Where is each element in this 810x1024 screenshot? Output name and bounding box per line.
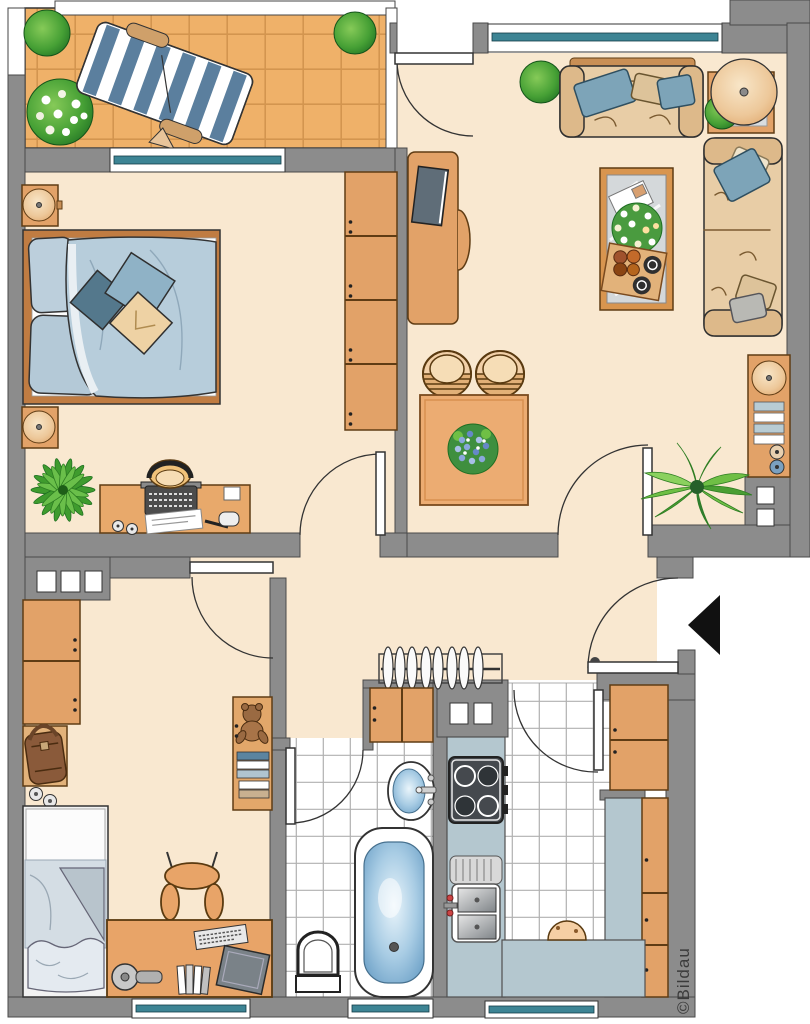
kitchen-cabinet-tall [610, 685, 668, 790]
toilet [296, 932, 340, 992]
floorplan-page: ©Bildau [0, 0, 810, 1024]
kids-wardrobe [23, 600, 80, 724]
sofa-two-seater [560, 58, 703, 137]
kitchen-cabinet-column [642, 798, 668, 997]
coffee-table [600, 168, 673, 310]
burner-icon [455, 796, 475, 816]
faucet-icon [444, 903, 457, 908]
bedroom-desk [100, 482, 250, 535]
bathroom-cabinet [370, 688, 433, 742]
double-bed [23, 230, 220, 404]
hallway [379, 647, 502, 689]
balcony-railing-top [55, 1, 395, 15]
kitchen-counter-bottom [502, 940, 645, 997]
hanger-icon [473, 647, 483, 689]
kids-bed [23, 806, 108, 997]
hanger-icon [421, 647, 431, 689]
serving-tray [601, 243, 666, 300]
living-room-window [488, 24, 722, 52]
balcony [8, 1, 397, 169]
potted-bush-icon [334, 12, 376, 54]
hanger-icon [407, 647, 417, 689]
apartment-floorplan: ©Bildau [0, 0, 810, 1024]
entrance-arrow-icon [688, 595, 720, 655]
toilet-tank [296, 976, 340, 992]
nightstand-top [22, 185, 62, 226]
table-bouquet-icon [448, 424, 498, 474]
drain-icon [390, 943, 399, 952]
hanger-icon [447, 647, 457, 689]
hanger-icon [383, 647, 393, 689]
hallway-lower-floor [284, 680, 367, 738]
bathtub [355, 828, 433, 997]
books [237, 752, 269, 760]
dining-table [420, 395, 528, 505]
nightstand-bottom [22, 407, 58, 448]
kids-desk [107, 920, 272, 997]
stove [449, 757, 508, 823]
round-plant-icon [520, 61, 562, 103]
kitchen-window [485, 1001, 598, 1018]
coat-rack [379, 647, 502, 689]
kids-wall-shelf [233, 697, 272, 810]
stereo-sideboard [748, 355, 790, 477]
mouse-icon [219, 512, 239, 526]
bathroom-window [348, 999, 433, 1018]
sofa-pillow [657, 74, 696, 109]
note-pad [224, 487, 240, 500]
sofa-long [704, 138, 782, 336]
bedroom-wardrobe [345, 172, 397, 430]
watermark-credit: ©Bildau [674, 947, 693, 1014]
hanger-icon [459, 647, 469, 689]
bedroom-window [110, 148, 285, 172]
kids-room-window [132, 999, 250, 1018]
hanger-icon [395, 647, 405, 689]
desk-chair [149, 460, 191, 488]
kitchen-sink [444, 856, 502, 942]
burner-icon [478, 766, 498, 786]
hanger-icon [433, 647, 443, 689]
potted-bush-icon [24, 10, 70, 56]
